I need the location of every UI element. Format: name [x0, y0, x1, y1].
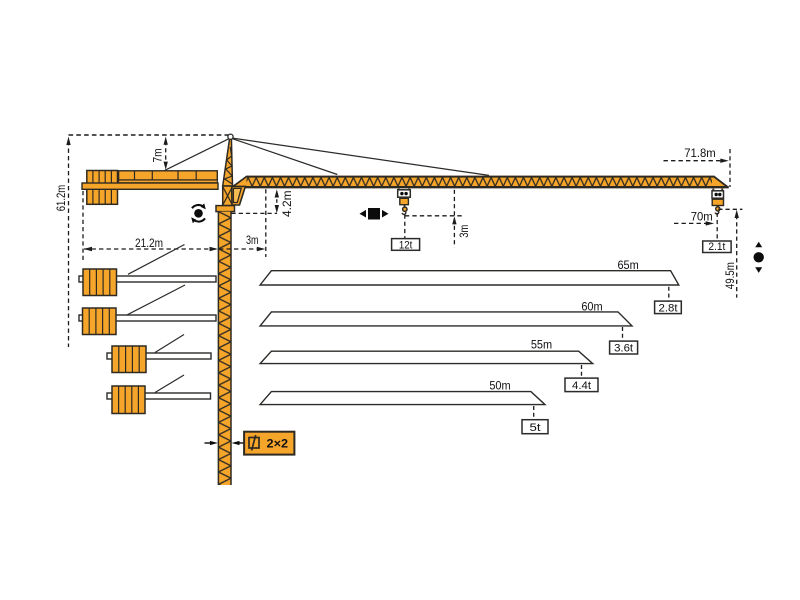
svg-text:49.5m: 49.5m: [723, 262, 737, 289]
svg-text:55m: 55m: [531, 338, 552, 352]
svg-text:4.2m: 4.2m: [280, 190, 294, 217]
svg-text:4.4t: 4.4t: [572, 380, 591, 392]
svg-text:61.2m: 61.2m: [54, 185, 68, 212]
svg-text:50m: 50m: [489, 378, 510, 392]
svg-text:70m: 70m: [691, 209, 713, 223]
svg-text:3m: 3m: [457, 225, 471, 238]
svg-text:3m: 3m: [246, 233, 259, 247]
svg-text:2.1t: 2.1t: [708, 241, 725, 253]
svg-text:71.8m: 71.8m: [684, 146, 716, 160]
svg-text:12t: 12t: [399, 239, 413, 251]
svg-text:2.8t: 2.8t: [659, 302, 678, 314]
svg-text:65m: 65m: [617, 258, 638, 272]
svg-text:5t: 5t: [530, 422, 541, 434]
svg-text:21.2m: 21.2m: [135, 236, 163, 250]
svg-text:2×2: 2×2: [267, 436, 289, 450]
svg-text:7m: 7m: [150, 148, 164, 162]
svg-text:60m: 60m: [581, 300, 602, 314]
svg-text:3.6t: 3.6t: [614, 343, 633, 355]
